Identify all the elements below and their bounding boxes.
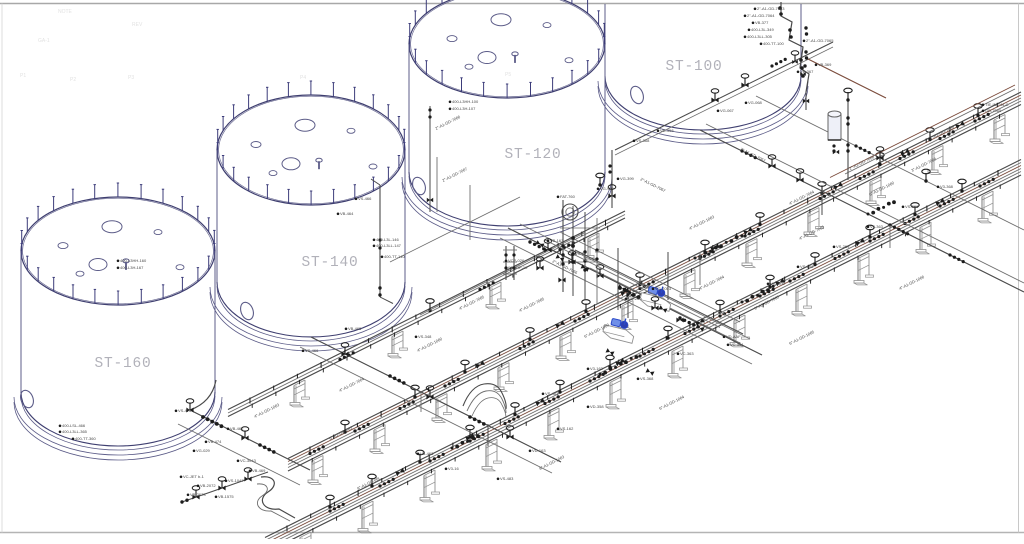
svg-text:400-L3L-146: 400-L3L-146 [376,237,399,242]
svg-text:VS-269: VS-269 [836,244,850,249]
svg-text:400-L3HH-160: 400-L3HH-160 [120,258,147,263]
svg-text:VB-474: VB-474 [208,439,222,444]
svg-text:P3: P3 [128,75,134,81]
svg-text:V3-368: V3-368 [940,184,954,189]
svg-text:VG-999: VG-999 [600,186,615,191]
svg-text:V3-16: V3-16 [448,466,459,471]
svg-text:NOTE: NOTE [58,9,73,15]
svg-text:REV: REV [132,22,143,28]
svg-text:VB-469: VB-469 [252,468,266,473]
svg-text:P1: P1 [20,73,26,79]
svg-text:P5: P5 [505,72,511,78]
svg-text:400-LSL-466: 400-LSL-466 [62,423,86,428]
svg-text:VD-358: VD-358 [590,404,604,409]
svg-text:VC-3043: VC-3043 [240,458,257,463]
svg-text:VD-AAF: VD-AAF [726,334,741,339]
svg-text:VC-JET b-1: VC-JET b-1 [183,474,205,479]
svg-text:VS-466: VS-466 [358,196,372,201]
svg-text:VB-465: VB-465 [348,326,362,331]
svg-text:VB-464: VB-464 [340,211,354,216]
svg-text:VS-466: VS-466 [305,348,319,353]
svg-text:2"-A1-GD-7065: 2"-A1-GD-7065 [806,38,834,43]
svg-text:2"-A1-GD-7063: 2"-A1-GD-7063 [757,6,785,11]
svg-text:VB-466: VB-466 [230,426,244,431]
svg-text:VC-361: VC-361 [730,342,744,347]
svg-text:VB-369: VB-369 [818,62,832,67]
svg-text:VS-476: VS-476 [178,408,192,413]
svg-text:VS-463: VS-463 [545,391,559,396]
svg-text:VG-2053: VG-2053 [655,286,672,291]
svg-text:VS-162: VS-162 [560,426,574,431]
svg-text:VS-483: VS-483 [500,476,514,481]
svg-text:ST-120: ST-120 [504,147,561,163]
svg-text:400-L3LL-147: 400-L3LL-147 [376,243,402,248]
svg-text:VC-260: VC-260 [628,296,642,301]
svg-text:VB-377: VB-377 [755,20,769,25]
svg-text:VD-358: VD-358 [660,128,674,133]
svg-text:VS-1047: VS-1047 [228,478,244,483]
svg-text:ST-140: ST-140 [301,255,358,271]
svg-text:V3-162: V3-162 [590,366,604,371]
svg-text:VG-399: VG-399 [620,176,635,181]
svg-text:TIE-IN 744-C: TIE-IN 744-C [985,102,1009,107]
svg-text:VG-067: VG-067 [720,108,735,113]
svg-text:2"-A1-GD-7064: 2"-A1-GD-7064 [747,13,775,18]
svg-text:VS-366: VS-366 [905,204,919,209]
svg-text:ST-100: ST-100 [665,59,722,75]
svg-text:400-L3H-107: 400-L3H-107 [452,106,476,111]
svg-text:VS-348: VS-348 [418,334,432,339]
svg-text:FAT-760: FAT-760 [560,194,576,199]
svg-text:VB-2073: VB-2073 [190,492,206,497]
svg-text:600-HP-10: 600-HP-10 [508,265,528,270]
svg-text:400-TT-360: 400-TT-360 [75,436,96,441]
svg-text:V3-363: V3-363 [870,224,884,229]
svg-text:VS-268: VS-268 [800,264,814,269]
svg-text:VB-1575: VB-1575 [218,494,234,499]
svg-text:VC-363: VC-363 [680,351,694,356]
svg-text:400-TT-100: 400-TT-100 [763,41,784,46]
svg-text:VB-367: VB-367 [800,69,814,74]
svg-text:P4: P4 [300,75,306,81]
svg-text:VG-029: VG-029 [196,448,211,453]
svg-text:400-L3HH-100: 400-L3HH-100 [452,99,479,104]
svg-text:GA-1: GA-1 [38,38,50,44]
svg-text:VG-068: VG-068 [748,100,763,105]
svg-text:VG-2EB: VG-2EB [770,281,785,286]
svg-text:400-L3L-349: 400-L3L-349 [751,27,774,32]
svg-text:VB-463: VB-463 [420,451,434,456]
svg-text:400-L3LL-305: 400-L3LL-305 [747,34,773,39]
svg-text:VS-368: VS-368 [640,376,654,381]
svg-text:ST-160: ST-160 [94,356,151,372]
svg-text:VB-163: VB-163 [550,238,564,243]
svg-text:V3-16: V3-16 [575,251,586,256]
svg-text:P2: P2 [70,77,76,83]
svg-text:VD-163: VD-163 [532,448,546,453]
svg-text:GD-7065: GD-7065 [985,108,1002,113]
svg-text:400-L3LL-365: 400-L3LL-365 [62,429,88,434]
svg-text:VB-2072: VB-2072 [200,483,216,488]
svg-text:VCP-026: VCP-026 [508,258,525,263]
svg-text:400-L3H-167: 400-L3H-167 [120,265,144,270]
svg-text:400-TT-140: 400-TT-140 [384,254,405,259]
svg-text:VS-368: VS-368 [636,138,650,143]
